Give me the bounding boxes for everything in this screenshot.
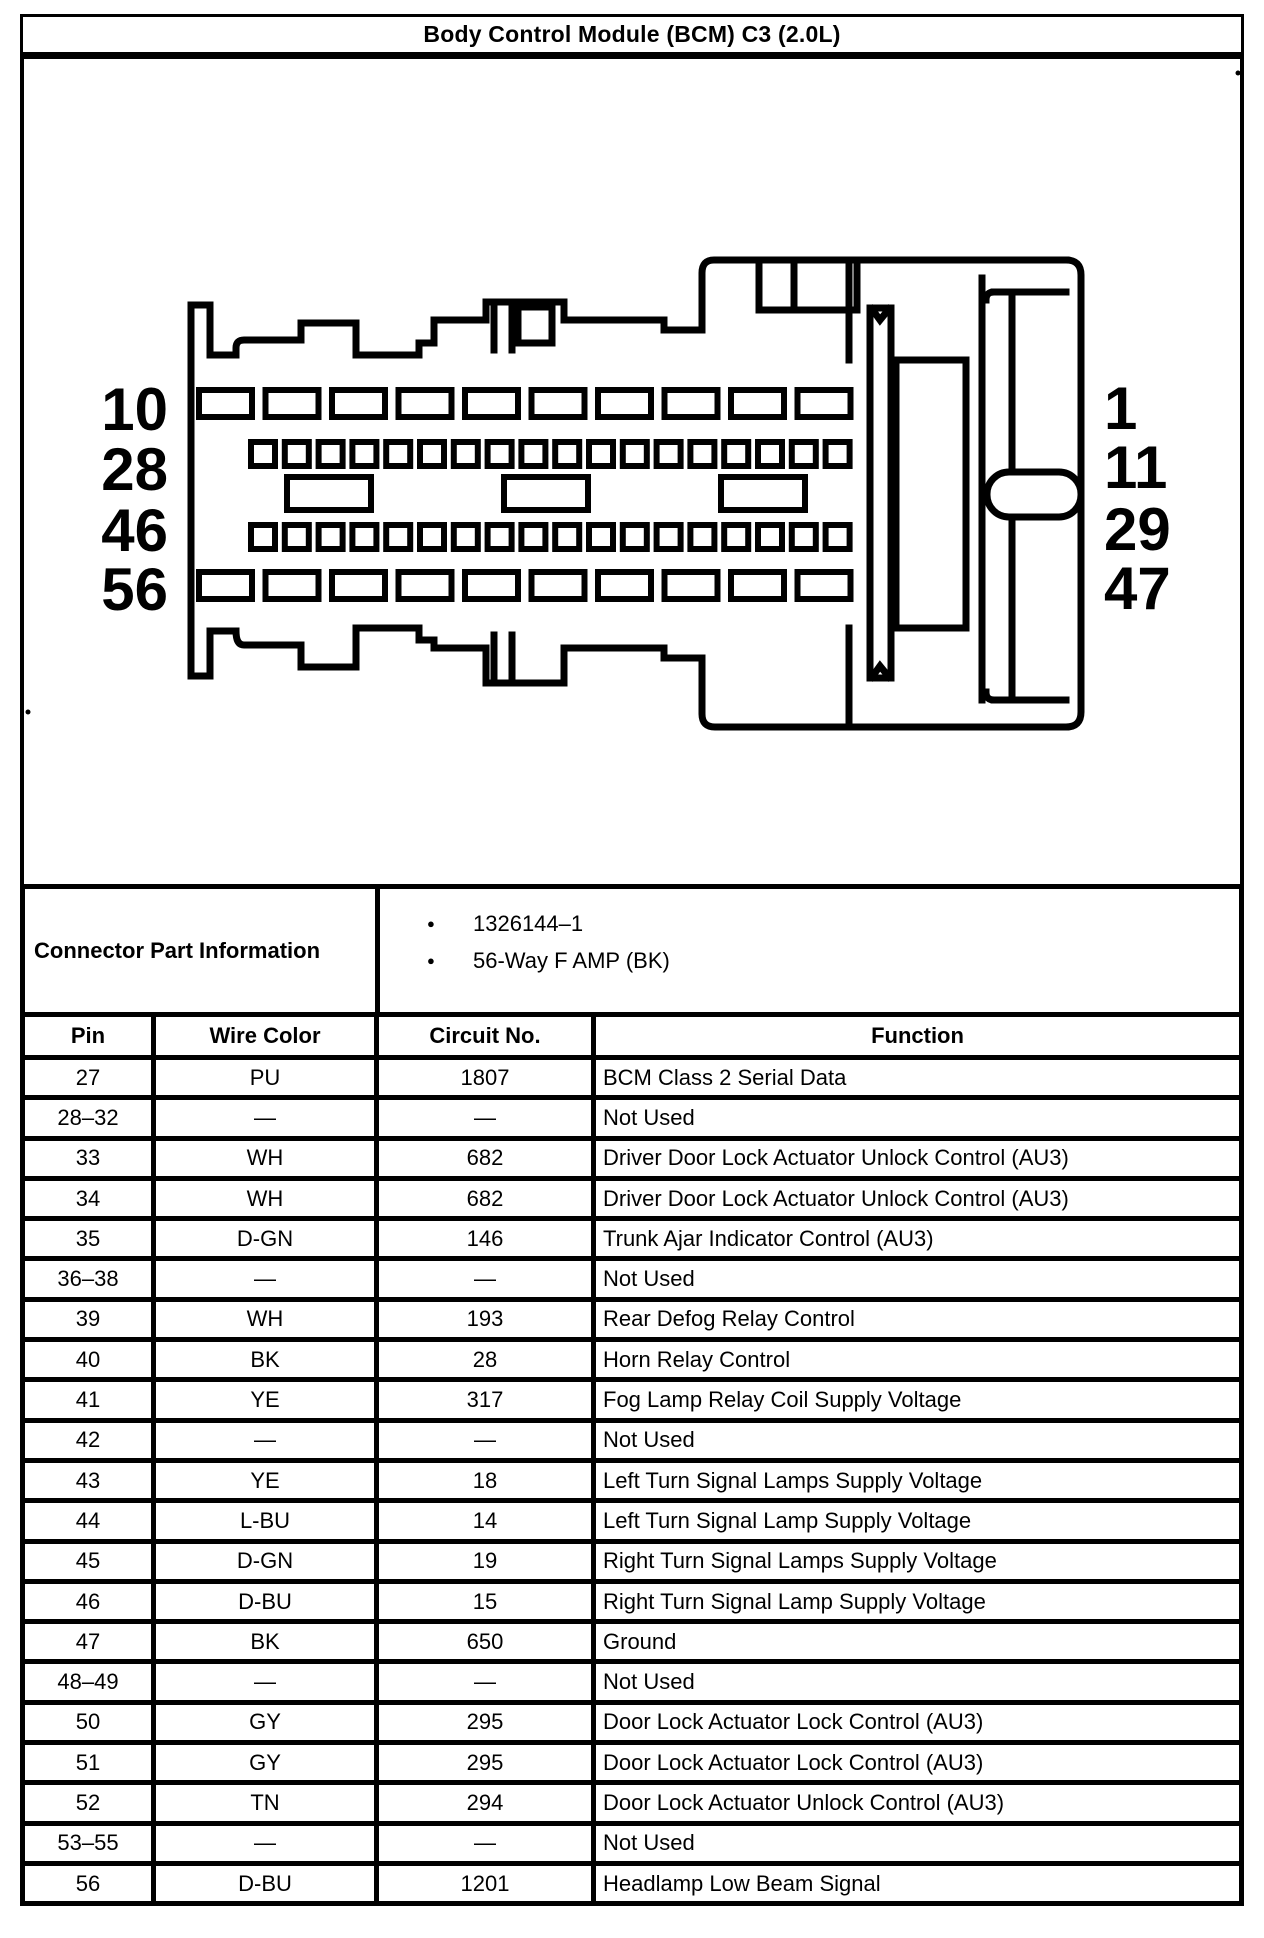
cell-wire-color: BK [151,1342,374,1377]
cell-function: Left Turn Signal Lamps Supply Voltage [591,1463,1239,1498]
table-row: 41YE317Fog Lamp Relay Coil Supply Voltag… [25,1377,1239,1417]
pin-cavity-small [589,442,613,466]
pin-cavity-small [792,525,816,549]
pin-cavity-small [724,525,748,549]
cell-circuit-no: 294 [374,1785,591,1820]
cell-function: Right Turn Signal Lamp Supply Voltage [591,1584,1239,1619]
pin-cavity-small [657,442,681,466]
pin-cavity-small [690,525,714,549]
header-circuit-no: Circuit No. [374,1017,591,1055]
pin-cavity-small [251,442,275,466]
cell-circuit-no: 1807 [374,1060,591,1095]
cell-wire-color: D-BU [151,1584,374,1619]
cell-circuit-no: 295 [374,1705,591,1740]
pin-row-label-left-28: 28 [101,436,168,503]
cell-pin: 51 [25,1745,151,1780]
print-artifact-dot [1236,71,1241,76]
pin-cavity-large [266,572,319,599]
cell-circuit-no: 682 [374,1141,591,1176]
keying-slot [504,477,588,510]
cell-function: Not Used [591,1261,1239,1296]
pin-cavity-small [758,525,782,549]
table-row: 36–38——Not Used [25,1256,1239,1296]
cell-pin: 35 [25,1221,151,1256]
pin-cavity-small [690,442,714,466]
cell-wire-color: WH [151,1181,374,1216]
table-row: 44L-BU14Left Turn Signal Lamp Supply Vol… [25,1498,1239,1538]
cell-circuit-no: — [374,1100,591,1135]
cell-wire-color: WH [151,1141,374,1176]
table-row: 35D-GN146Trunk Ajar Indicator Control (A… [25,1216,1239,1256]
cell-pin: 34 [25,1181,151,1216]
pin-cavity-large [798,390,851,417]
pin-cavity-small [521,442,545,466]
pin-cavity-large [598,390,651,417]
pin-cavity-small [826,525,850,549]
pin-cavity-large [399,572,452,599]
table-row: 53–55——Not Used [25,1821,1239,1861]
table-row: 50GY295Door Lock Actuator Lock Control (… [25,1700,1239,1740]
cell-pin: 50 [25,1705,151,1740]
pin-cavity-small [792,442,816,466]
cell-function: Door Lock Actuator Lock Control (AU3) [591,1745,1239,1780]
pin-cavity-small [285,442,309,466]
cell-pin: 39 [25,1302,151,1337]
connector-part-info-items: ● 1326144–1 ● 56-Way F AMP (BK) [380,889,1239,1012]
cell-wire-color: — [151,1826,374,1861]
pin-row-label-right-47: 47 [1104,555,1171,622]
pin-cavity-large [399,390,452,417]
cell-function: BCM Class 2 Serial Data [591,1060,1239,1095]
table-row: 34WH682Driver Door Lock Actuator Unlock … [25,1176,1239,1216]
cell-circuit-no: 14 [374,1503,591,1538]
cell-pin: 53–55 [25,1826,151,1861]
part-info-item: ● 1326144–1 [427,905,1239,942]
cell-wire-color: TN [151,1785,374,1820]
cell-function: Ground [591,1624,1239,1659]
cell-pin: 40 [25,1342,151,1377]
pin-cavity-large [332,390,385,417]
cell-circuit-no: 193 [374,1302,591,1337]
keying-slot [721,477,805,510]
cell-function: Not Used [591,1423,1239,1458]
cell-wire-color: D-GN [151,1544,374,1579]
connector-part-info-label-text: Connector Part Information [34,938,320,964]
cell-pin: 41 [25,1382,151,1417]
cell-pin: 47 [25,1624,151,1659]
pin-row-label-right-1: 1 [1104,375,1137,442]
pin-cavity-small [657,525,681,549]
cell-wire-color: WH [151,1302,374,1337]
pin-cavity-large [465,572,518,599]
cell-wire-color: GY [151,1745,374,1780]
header-function: Function [591,1017,1239,1055]
page-title: Body Control Module (BCM) C3 (2.0L) [20,14,1244,59]
header-pin: Pin [25,1017,151,1055]
pin-cavity-small [724,442,748,466]
pin-cavity-large [266,390,319,417]
cell-wire-color: — [151,1261,374,1296]
cell-wire-color: — [151,1664,374,1699]
cell-circuit-no: — [374,1826,591,1861]
cell-pin: 27 [25,1060,151,1095]
cell-wire-color: D-GN [151,1221,374,1256]
pin-cavity-small [826,442,850,466]
pin-cavity-large [532,390,585,417]
cell-wire-color: YE [151,1463,374,1498]
cell-pin: 56 [25,1866,151,1901]
connector-type: 56-Way F AMP (BK) [473,948,670,974]
cell-circuit-no: 146 [374,1221,591,1256]
cell-function: Door Lock Actuator Unlock Control (AU3) [591,1785,1239,1820]
pin-cavity-small [623,442,647,466]
cell-pin: 36–38 [25,1261,151,1296]
connector-diagram-box: 10 28 46 56 1 11 29 47 [20,59,1244,884]
cell-circuit-no: 295 [374,1745,591,1780]
pin-cavity-small [352,525,376,549]
part-info-item: ● 56-Way F AMP (BK) [427,942,1239,979]
pin-cavity-small [454,525,478,549]
cell-function: Door Lock Actuator Lock Control (AU3) [591,1705,1239,1740]
cell-pin: 42 [25,1423,151,1458]
cell-circuit-no: — [374,1423,591,1458]
cell-function: Driver Door Lock Actuator Unlock Control… [591,1141,1239,1176]
cell-pin: 33 [25,1141,151,1176]
cell-wire-color: PU [151,1060,374,1095]
cell-function: Driver Door Lock Actuator Unlock Control… [591,1181,1239,1216]
cell-wire-color: GY [151,1705,374,1740]
part-number: 1326144–1 [473,911,583,937]
cell-circuit-no: — [374,1261,591,1296]
page: { "title": "Body Control Module (BCM) C3… [0,0,1264,1938]
table-row: 40BK28Horn Relay Control [25,1337,1239,1377]
pin-cavity-small [555,525,579,549]
pin-row-label-right-29: 29 [1104,496,1171,563]
pin-cavity-small [521,525,545,549]
cell-circuit-no: 650 [374,1624,591,1659]
cell-circuit-no: 28 [374,1342,591,1377]
table-row: 27PU1807BCM Class 2 Serial Data [25,1055,1239,1095]
pin-cavity-large [465,390,518,417]
cell-function: Left Turn Signal Lamp Supply Voltage [591,1503,1239,1538]
pin-cavity-small [319,525,343,549]
cell-pin: 43 [25,1463,151,1498]
pinout-table: Connector Part Information ● 1326144–1 ●… [20,884,1244,1906]
table-row: 43YE18Left Turn Signal Lamps Supply Volt… [25,1458,1239,1498]
table-row: 46D-BU15Right Turn Signal Lamp Supply Vo… [25,1579,1239,1619]
pin-cavity-large [332,572,385,599]
bullet-icon: ● [427,905,473,942]
cell-circuit-no: 19 [374,1544,591,1579]
pin-cavity-small [352,442,376,466]
connector-part-info-label: Connector Part Information [25,889,380,1012]
cell-function: Horn Relay Control [591,1342,1239,1377]
pin-cavity-large [798,572,851,599]
table-row: 42——Not Used [25,1418,1239,1458]
pin-cavity-small [758,442,782,466]
table-row: 47BK650Ground [25,1619,1239,1659]
cell-wire-color: YE [151,1382,374,1417]
page-title-text: Body Control Module (BCM) C3 (2.0L) [423,21,840,48]
cell-wire-color: D-BU [151,1866,374,1901]
table-body: 27PU1807BCM Class 2 Serial Data28–32——No… [25,1055,1239,1901]
bullet-icon: ● [427,942,473,979]
pin-cavity-large [731,572,784,599]
cell-pin: 48–49 [25,1664,151,1699]
header-wire-color: Wire Color [151,1017,374,1055]
cell-pin: 28–32 [25,1100,151,1135]
table-row: 48–49——Not Used [25,1659,1239,1699]
pin-cavity-small [386,442,410,466]
connector-outline [191,260,1081,727]
pin-row-label-left-56: 56 [101,556,168,623]
pin-cavity-large [199,390,252,417]
pin-cavity-large [199,572,252,599]
connector-part-info-row: Connector Part Information ● 1326144–1 ●… [25,889,1239,1012]
pin-cavity-large [598,572,651,599]
pin-cavity-small [319,442,343,466]
cell-pin: 45 [25,1544,151,1579]
connector-pin-field [199,390,851,599]
table-row: 45D-GN19Right Turn Signal Lamps Supply V… [25,1539,1239,1579]
pin-cavity-large [665,390,718,417]
cell-circuit-no: 18 [374,1463,591,1498]
cell-function: Trunk Ajar Indicator Control (AU3) [591,1221,1239,1256]
cell-pin: 46 [25,1584,151,1619]
cell-function: Not Used [591,1664,1239,1699]
cell-circuit-no: 1201 [374,1866,591,1901]
cell-function: Not Used [591,1100,1239,1135]
pin-cavity-small [488,442,512,466]
pin-cavity-small [386,525,410,549]
table-row: 33WH682Driver Door Lock Actuator Unlock … [25,1136,1239,1176]
table-header-row: Pin Wire Color Circuit No. Function [25,1012,1239,1055]
table-row: 51GY295Door Lock Actuator Lock Control (… [25,1740,1239,1780]
pin-cavity-small [285,525,309,549]
pin-row-label-left-10: 10 [101,376,168,443]
pin-cavity-large [665,572,718,599]
keying-slot [287,477,371,510]
connector-diagram: 10 28 46 56 1 11 29 47 [24,59,1244,884]
cell-wire-color: — [151,1100,374,1135]
pin-cavity-small [589,525,613,549]
cell-function: Not Used [591,1826,1239,1861]
table-row: 39WH193Rear Defog Relay Control [25,1297,1239,1337]
cell-wire-color: L-BU [151,1503,374,1538]
table-row: 28–32——Not Used [25,1095,1239,1135]
pin-cavity-small [251,525,275,549]
cell-function: Headlamp Low Beam Signal [591,1866,1239,1901]
cell-wire-color: BK [151,1624,374,1659]
pin-row-label-left-46: 46 [101,497,168,564]
pin-cavity-small [623,525,647,549]
cell-circuit-no: 15 [374,1584,591,1619]
cell-pin: 44 [25,1503,151,1538]
pin-cavity-large [731,390,784,417]
pin-cavity-small [420,442,444,466]
pin-cavity-small [454,442,478,466]
pin-row-label-right-11: 11 [1104,434,1167,501]
pin-cavity-small [488,525,512,549]
cell-pin: 52 [25,1785,151,1820]
table-row: 52TN294Door Lock Actuator Unlock Control… [25,1780,1239,1820]
cell-function: Fog Lamp Relay Coil Supply Voltage [591,1382,1239,1417]
print-artifact-dot [26,710,31,715]
cell-function: Right Turn Signal Lamps Supply Voltage [591,1544,1239,1579]
cell-circuit-no: — [374,1664,591,1699]
pin-cavity-large [532,572,585,599]
pin-cavity-small [555,442,579,466]
cell-function: Rear Defog Relay Control [591,1302,1239,1337]
pin-cavity-small [420,525,444,549]
cell-wire-color: — [151,1423,374,1458]
cell-circuit-no: 682 [374,1181,591,1216]
cell-circuit-no: 317 [374,1382,591,1417]
table-row: 56D-BU1201Headlamp Low Beam Signal [25,1861,1239,1901]
